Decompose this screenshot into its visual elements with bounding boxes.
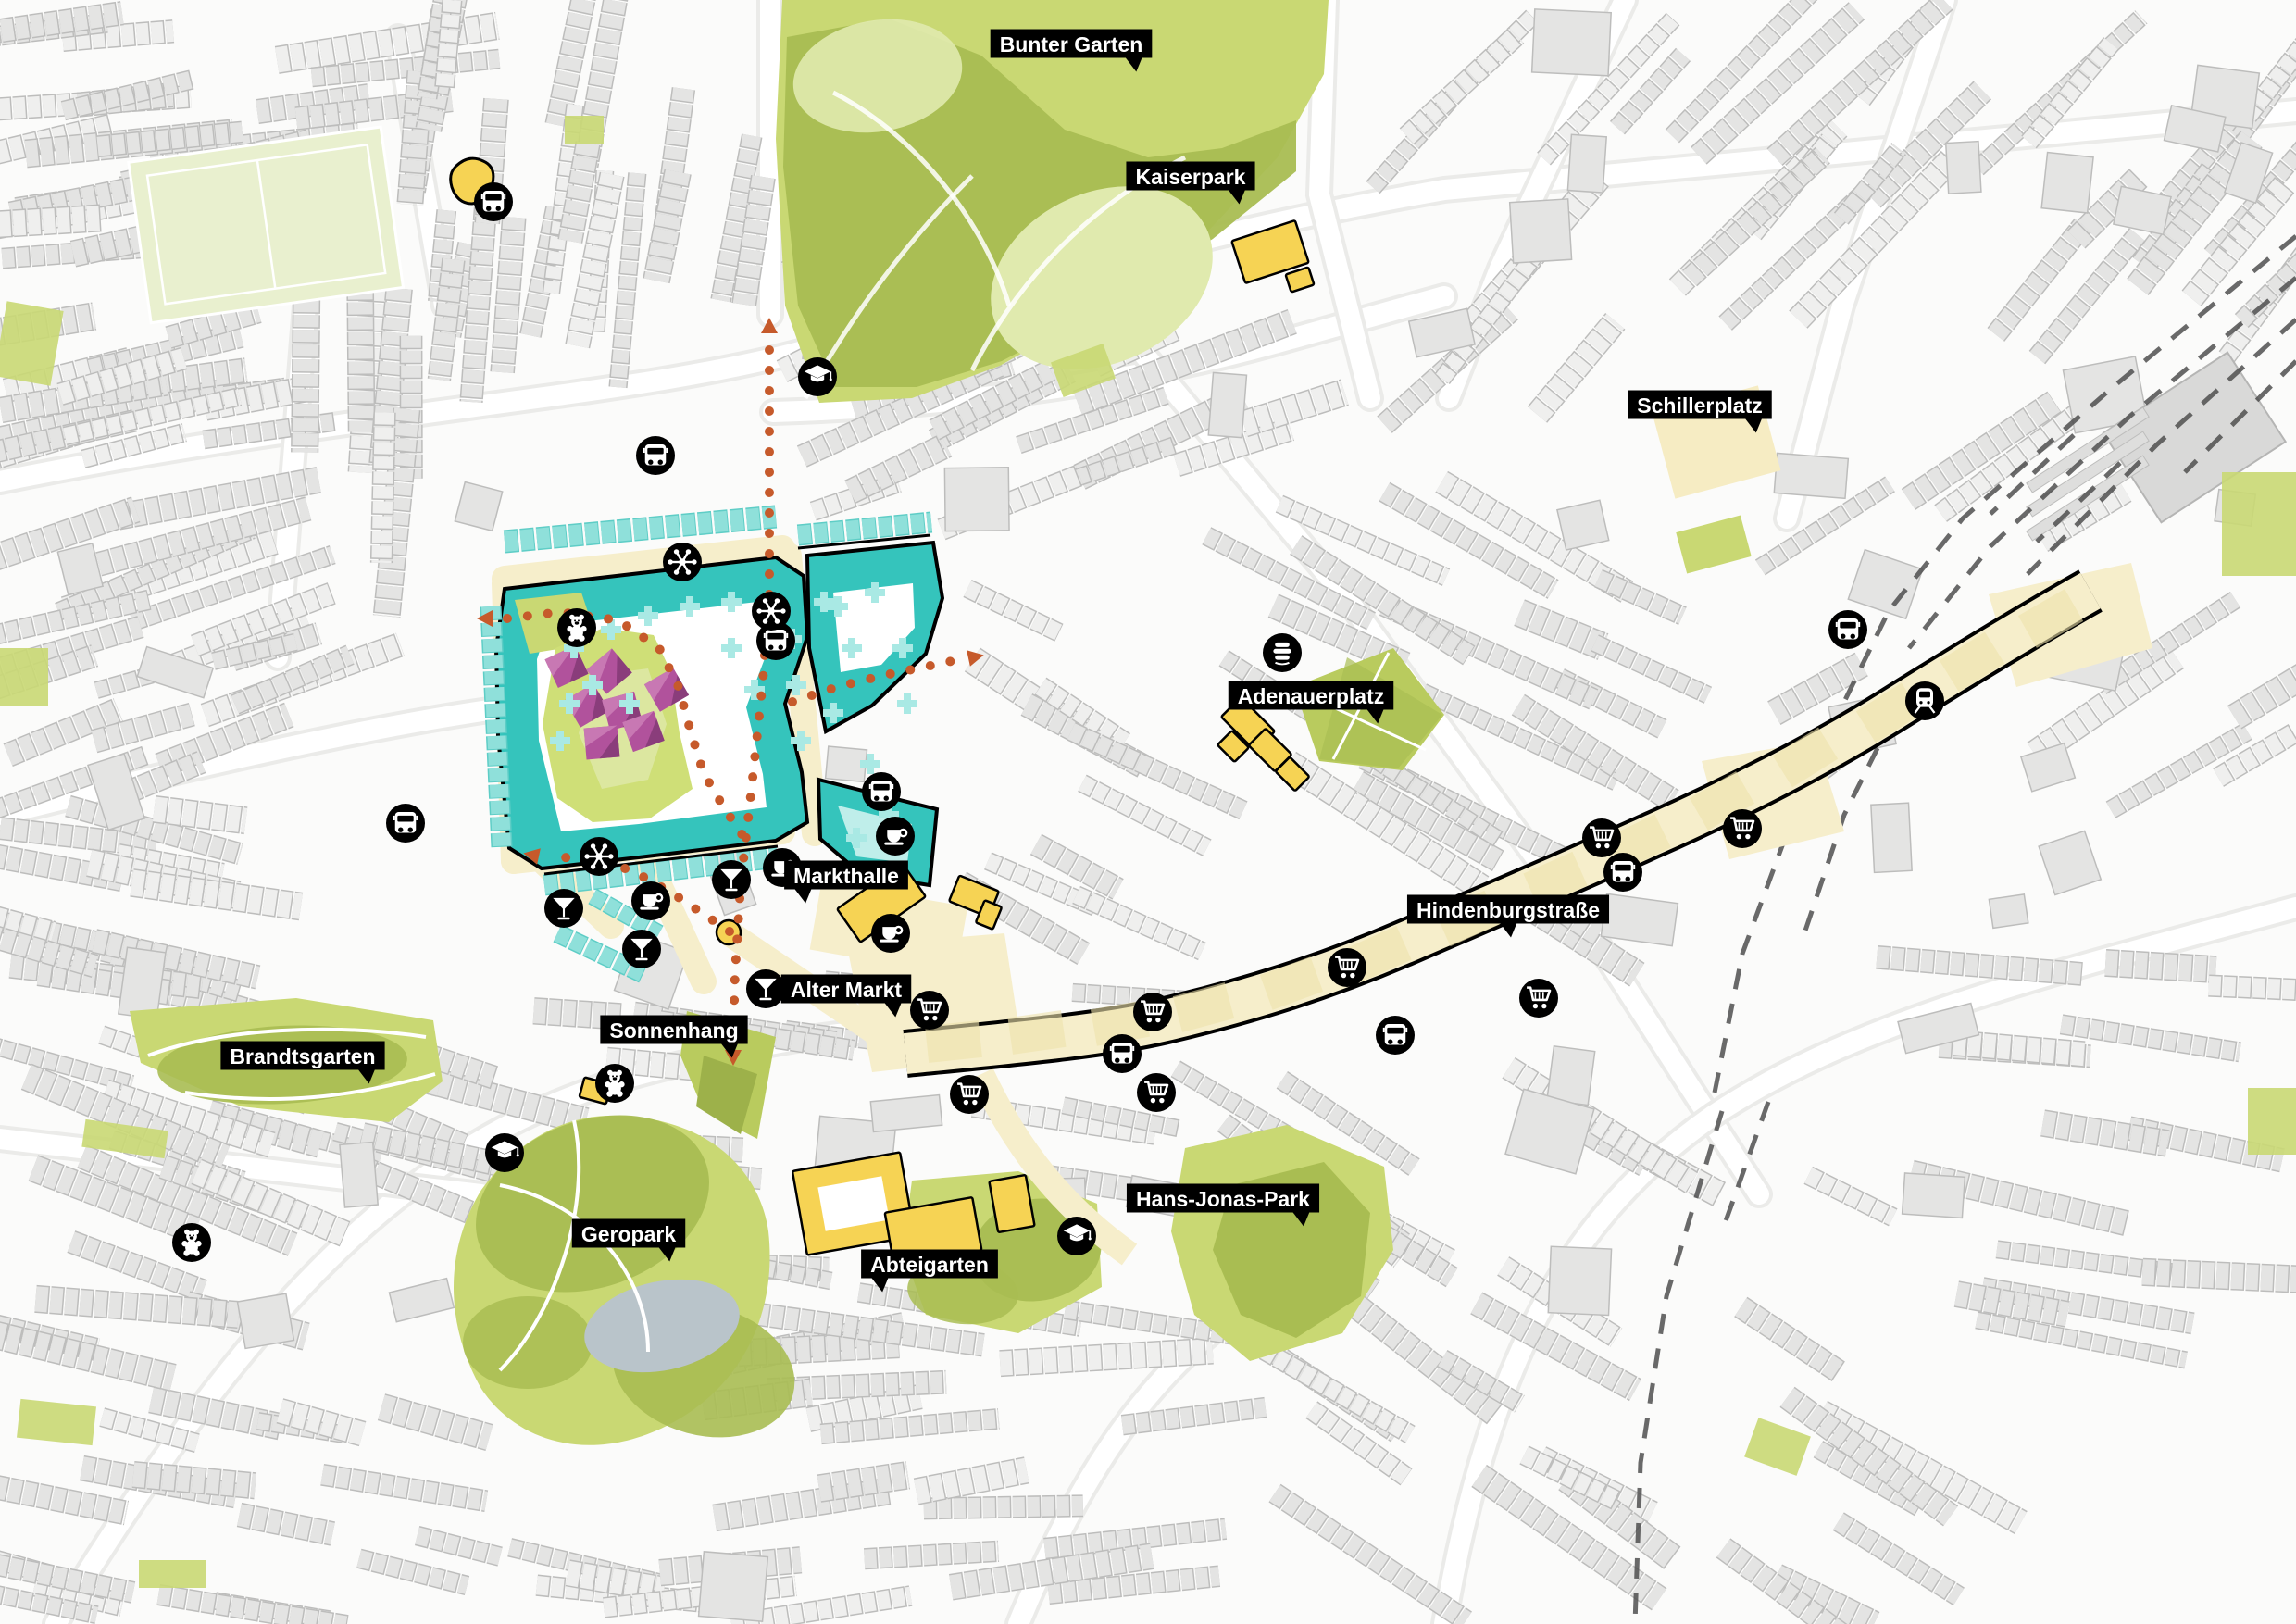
label-text: Hindenburgstraße bbox=[1416, 898, 1600, 922]
teddy-icon[interactable] bbox=[557, 608, 596, 647]
new-building bbox=[584, 725, 620, 759]
education-icon[interactable] bbox=[485, 1133, 524, 1172]
label-text: Hans-Jonas-Park bbox=[1136, 1187, 1310, 1211]
education-icon[interactable] bbox=[798, 357, 837, 396]
cocktail-icon[interactable] bbox=[746, 969, 785, 1008]
train-icon[interactable] bbox=[1905, 681, 1944, 720]
coffee-icon[interactable] bbox=[871, 914, 910, 953]
teddy-icon[interactable] bbox=[595, 1064, 634, 1103]
teddy-icon[interactable] bbox=[172, 1223, 211, 1262]
cart-icon[interactable] bbox=[950, 1075, 989, 1114]
bus-icon[interactable] bbox=[862, 772, 901, 811]
library-icon[interactable] bbox=[1263, 633, 1302, 672]
coffee-icon[interactable] bbox=[631, 881, 670, 920]
label-text: Geropark bbox=[581, 1222, 676, 1246]
bus-icon[interactable] bbox=[386, 804, 425, 843]
carousel-icon[interactable] bbox=[663, 543, 702, 581]
cart-icon[interactable] bbox=[1723, 809, 1762, 848]
carousel-icon[interactable] bbox=[752, 592, 791, 631]
bus-icon[interactable] bbox=[636, 436, 675, 475]
cart-icon[interactable] bbox=[1328, 948, 1366, 987]
label-text: Brandtsgarten bbox=[230, 1044, 375, 1068]
cocktail-icon[interactable] bbox=[712, 860, 751, 899]
bus-icon[interactable] bbox=[1828, 610, 1867, 649]
cart-icon[interactable] bbox=[1519, 979, 1558, 1018]
coffee-icon[interactable] bbox=[876, 817, 915, 856]
label-text: Schillerplatz bbox=[1637, 394, 1762, 418]
label-text: Bunter Garten bbox=[1000, 32, 1143, 56]
carousel-icon[interactable] bbox=[580, 837, 618, 876]
label-text: Kaiserpark bbox=[1136, 165, 1246, 189]
bus-icon[interactable] bbox=[1376, 1016, 1415, 1055]
bus-icon[interactable] bbox=[474, 182, 513, 221]
cart-icon[interactable] bbox=[1137, 1073, 1176, 1112]
label-text: Sonnenhang bbox=[609, 1018, 738, 1043]
cart-icon[interactable] bbox=[910, 991, 949, 1030]
label-text: Markthalle bbox=[793, 864, 899, 888]
city-map[interactable]: Bunter GartenKaiserparkSchillerplatzAden… bbox=[0, 0, 2296, 1624]
label-text: Adenauerplatz bbox=[1238, 684, 1384, 708]
bus-icon[interactable] bbox=[1103, 1034, 1142, 1073]
cart-icon[interactable] bbox=[1133, 993, 1172, 1031]
bus-icon[interactable] bbox=[1603, 853, 1642, 892]
education-icon[interactable] bbox=[1057, 1217, 1096, 1255]
cocktail-icon[interactable] bbox=[622, 930, 661, 968]
label-text: Abteigarten bbox=[870, 1253, 989, 1277]
cocktail-icon[interactable] bbox=[544, 889, 583, 928]
cart-icon[interactable] bbox=[1582, 818, 1621, 857]
label-text: Alter Markt bbox=[791, 978, 902, 1002]
